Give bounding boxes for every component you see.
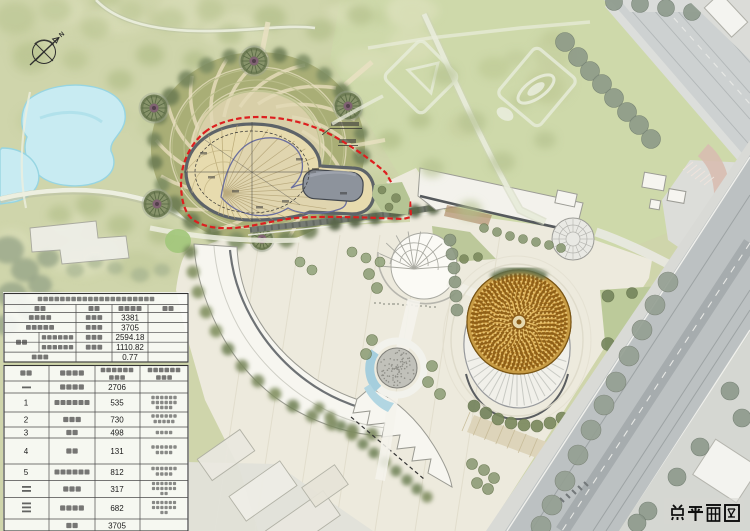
svg-text:131: 131 — [110, 447, 124, 456]
svg-text:0.77: 0.77 — [122, 353, 138, 362]
svg-text:3381: 3381 — [121, 313, 139, 322]
svg-text:5: 5 — [24, 468, 29, 477]
svg-text:812: 812 — [110, 468, 124, 477]
svg-text:3705: 3705 — [121, 323, 139, 332]
svg-text:2594.18: 2594.18 — [116, 333, 145, 342]
svg-text:3: 3 — [24, 428, 29, 437]
svg-text:682: 682 — [110, 504, 124, 513]
svg-text:535: 535 — [110, 398, 124, 407]
svg-text:1110.82: 1110.82 — [116, 343, 144, 352]
svg-text:2706: 2706 — [108, 383, 126, 392]
svg-text:1: 1 — [24, 398, 29, 407]
svg-text:498: 498 — [110, 428, 124, 437]
svg-text:4: 4 — [24, 447, 29, 456]
svg-text:2: 2 — [24, 415, 29, 424]
svg-text:730: 730 — [110, 415, 124, 424]
svg-text:3705: 3705 — [108, 521, 126, 530]
svg-text:317: 317 — [110, 485, 124, 494]
